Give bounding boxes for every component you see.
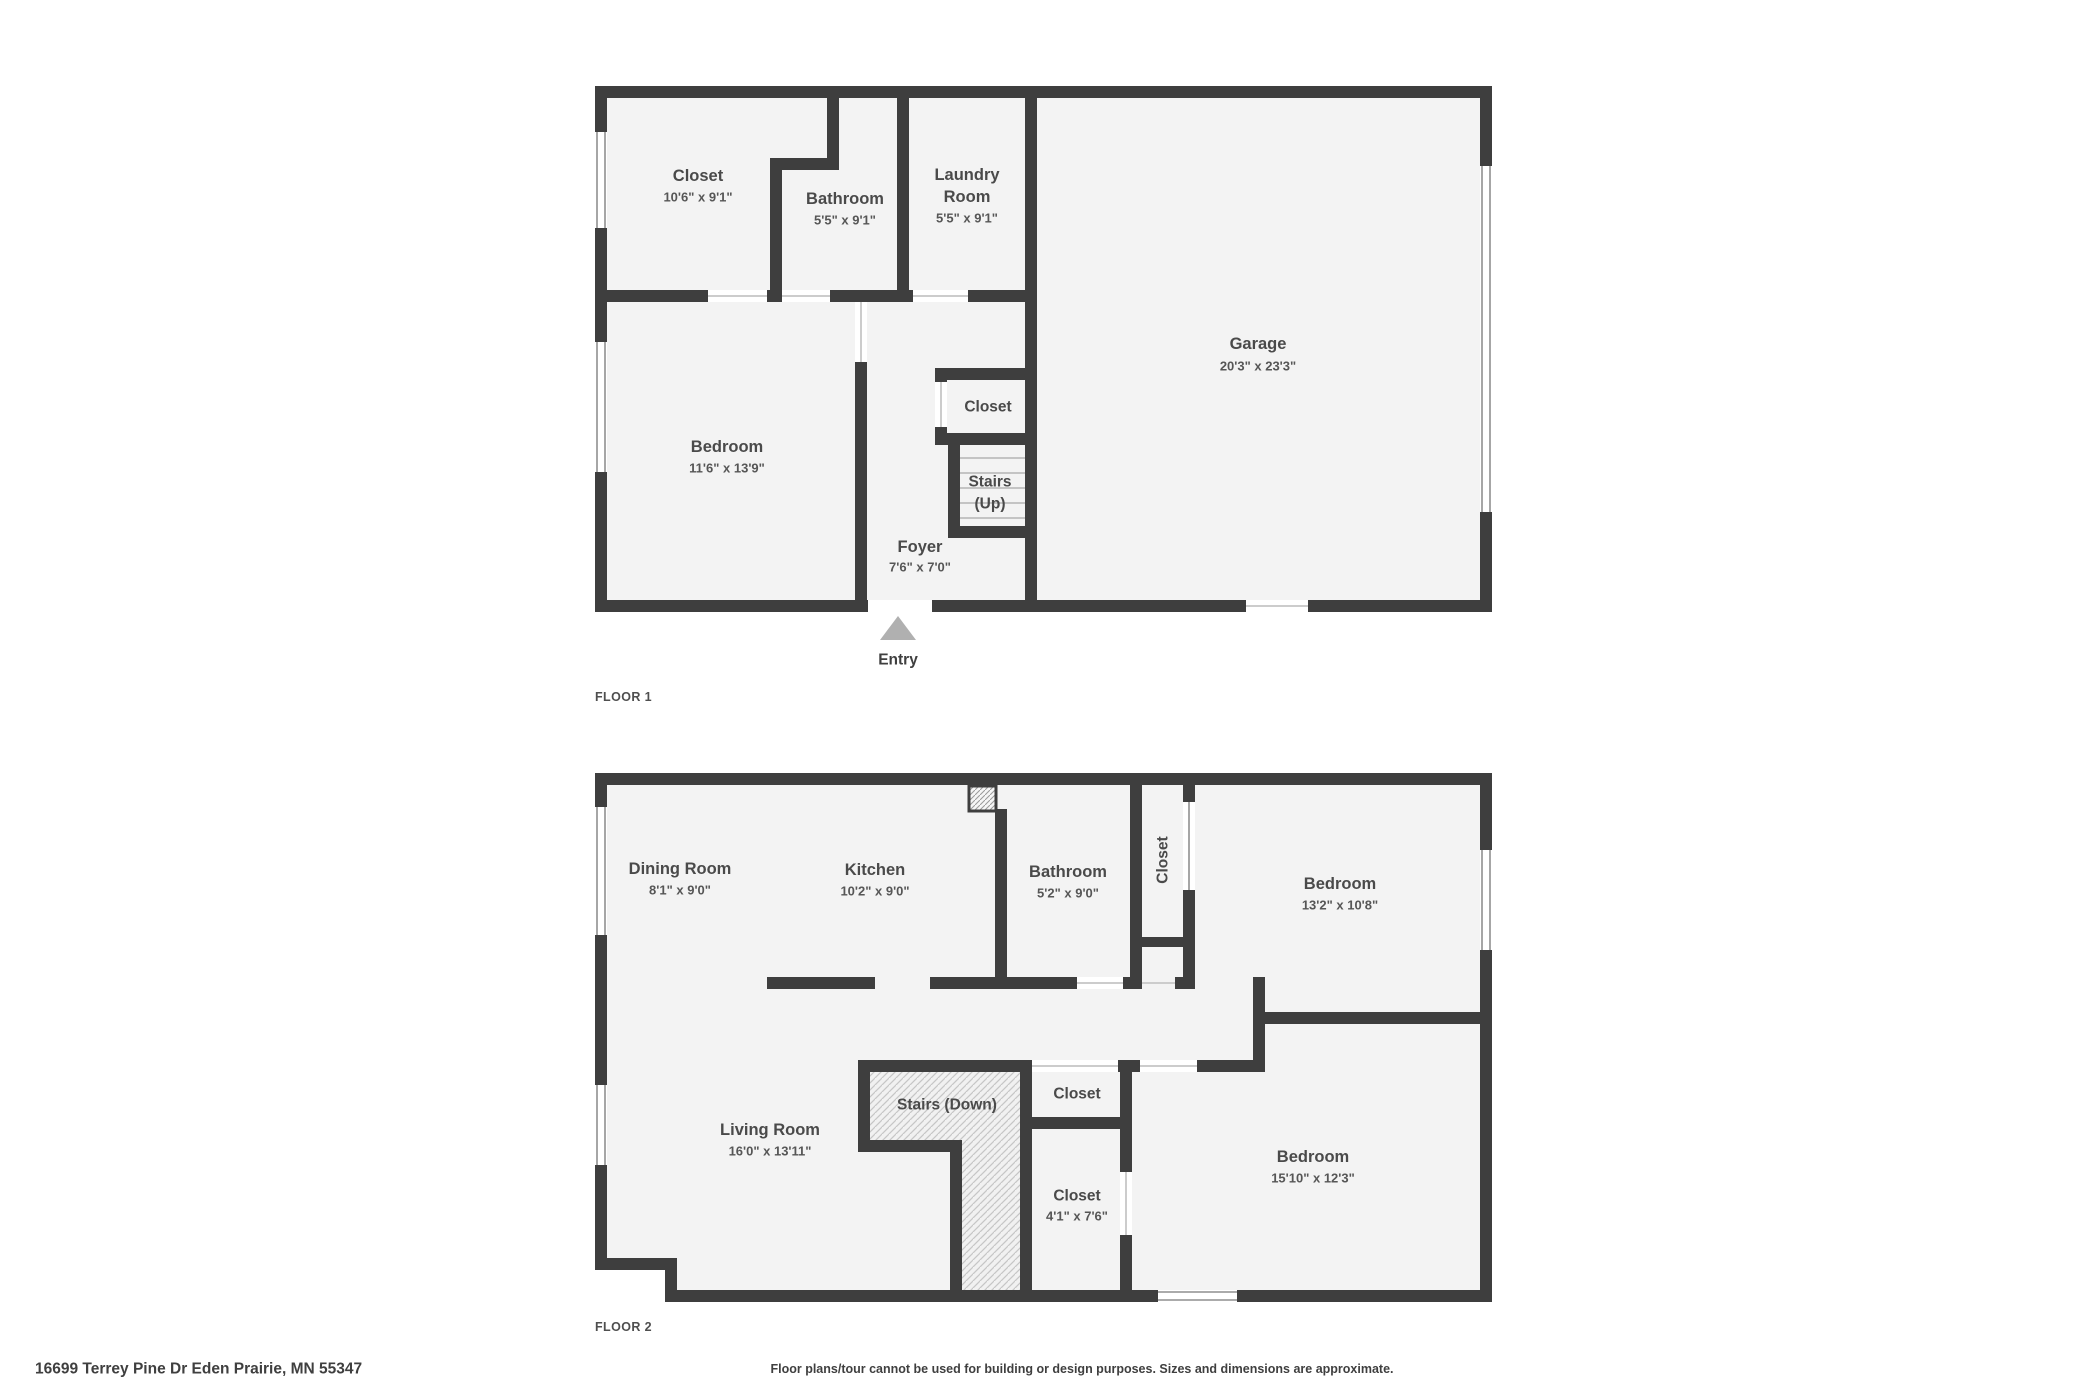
floor1-bedroom-name: Bedroom	[691, 438, 763, 456]
floor1-plan: Closet 10'6" x 9'1" Bathroom 5'5" x 9'1"…	[595, 86, 1492, 704]
chimney-icon	[969, 786, 996, 811]
floor2-bedroom-bottom-name: Bedroom	[1277, 1148, 1349, 1166]
footer-disclaimer: Floor plans/tour cannot be used for buil…	[770, 1362, 1393, 1376]
floor1-closet-name: Closet	[673, 167, 724, 185]
floor1-foyer-name: Foyer	[898, 538, 944, 556]
floor2-bathroom-name: Bathroom	[1029, 863, 1107, 881]
entry-label: Entry	[878, 652, 918, 669]
floor2-dining-name: Dining Room	[629, 860, 732, 878]
floor1-bathroom-dims: 5'5" x 9'1"	[814, 213, 876, 228]
floor2-bedroom-bottom-dims: 15'10" x 12'3"	[1271, 1171, 1355, 1186]
floor2-stairs-name: Stairs (Down)	[897, 1097, 997, 1114]
floor1-stairs-name2: (Up)	[975, 496, 1006, 513]
floor2-closet-lower-dims: 4'1" x 7'6"	[1046, 1209, 1108, 1224]
floor2-kitchen-dims: 10'2" x 9'0"	[840, 884, 909, 899]
floorplan-canvas: Closet 10'6" x 9'1" Bathroom 5'5" x 9'1"…	[0, 0, 2080, 1386]
floor1-caption: FLOOR 1	[595, 690, 652, 704]
floor2-closet-lower-name: Closet	[1053, 1188, 1100, 1205]
floor1-laundry-name2: Room	[944, 188, 991, 206]
floor1-stairs-name1: Stairs	[968, 474, 1011, 491]
floor1-foyer-dims: 7'6" x 7'0"	[889, 560, 951, 575]
floor2-bathroom-dims: 5'2" x 9'0"	[1037, 886, 1099, 901]
floor1-midcloset-name: Closet	[964, 399, 1011, 416]
property-address: 16699 Terrey Pine Dr Eden Prairie, MN 55…	[35, 1361, 362, 1378]
footer: 16699 Terrey Pine Dr Eden Prairie, MN 55…	[35, 1361, 1394, 1378]
floor1-laundry-name1: Laundry	[934, 166, 1000, 184]
floor1-floor-area	[595, 86, 1492, 612]
floor2-living-name: Living Room	[720, 1121, 820, 1139]
floor1-garage-name: Garage	[1230, 335, 1287, 353]
floor1-closet-dims: 10'6" x 9'1"	[663, 190, 732, 205]
floor2-bedroom-top-name: Bedroom	[1304, 875, 1376, 893]
floor2-floor-area	[595, 773, 1492, 1302]
entry-marker: Entry	[878, 616, 918, 669]
floor2-closet-small-name: Closet	[1053, 1086, 1100, 1103]
floor2-kitchen-name: Kitchen	[845, 861, 906, 879]
floor1-bathroom-name: Bathroom	[806, 190, 884, 208]
floor1-laundry-dims: 5'5" x 9'1"	[936, 211, 998, 226]
floor2-closet-column-name: Closet	[1155, 836, 1172, 883]
floor2-bedroom-top-dims: 13'2" x 10'8"	[1302, 898, 1378, 913]
floor1-bedroom-dims: 11'6" x 13'9"	[689, 461, 765, 476]
floor2-plan: Dining Room 8'1" x 9'0" Kitchen 10'2" x …	[595, 773, 1492, 1334]
floor2-dining-dims: 8'1" x 9'0"	[649, 883, 711, 898]
floor2-caption: FLOOR 2	[595, 1320, 652, 1334]
floor1-garage-dims: 20'3" x 23'3"	[1220, 359, 1296, 374]
entry-arrow-icon	[880, 616, 916, 640]
floor2-living-dims: 16'0" x 13'11"	[729, 1144, 812, 1159]
